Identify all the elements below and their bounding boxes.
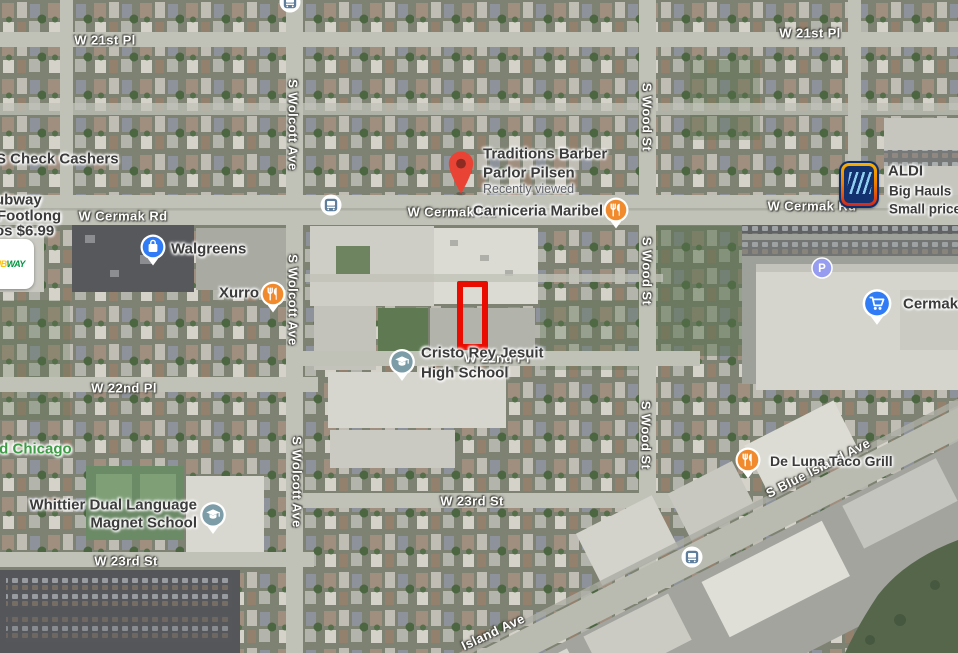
street-label-wood-3: S Wood St — [639, 401, 654, 469]
parking-icon[interactable]: P — [811, 257, 833, 279]
bus-stop-icon[interactable] — [320, 194, 342, 216]
poi-label-whittier-1[interactable]: Whittier Dual Language — [29, 497, 197, 514]
graduation-cap-icon[interactable] — [389, 349, 416, 382]
poi-label-walgreens[interactable]: Walgreens — [171, 241, 246, 258]
bus-stop-icon[interactable] — [279, 0, 301, 13]
street-label-wood-1: S Wood St — [640, 83, 655, 151]
subway-logo-text-right: WAY — [7, 259, 25, 269]
highlight-rectangle — [457, 281, 488, 350]
street-label-w22nd-pl-1: W 22nd Pl — [91, 381, 157, 396]
poi-label-traditions-1[interactable]: Traditions Barber — [483, 146, 607, 163]
street-label-cermak-1: W Cermak Rd — [79, 209, 168, 224]
restaurant-icon[interactable] — [260, 281, 286, 313]
street-label-wood-2: S Wood St — [640, 237, 655, 305]
restaurant-icon[interactable] — [603, 197, 629, 229]
street-label-w23rd-st-2: W 23rd St — [94, 554, 158, 569]
poi-label-subway[interactable]: ubway — [0, 192, 42, 209]
poi-label-de-luna[interactable]: De Luna Taco Grill — [770, 453, 893, 469]
bus-stop-icon[interactable] — [681, 546, 703, 568]
poi-label-xurro[interactable]: Xurro — [219, 285, 259, 302]
poi-label-aldi-tagline-2: Small price T — [889, 202, 958, 217]
street-label-wolcott-2: S Wolcott Ave — [286, 254, 301, 345]
poi-label-traditions-2[interactable]: Parlor Pilsen — [483, 165, 575, 182]
map-pin-icon[interactable] — [446, 147, 476, 199]
poi-label-aldi[interactable]: ALDI — [888, 163, 923, 180]
street-label-wolcott-1: S Wolcott Ave — [286, 79, 301, 170]
poi-label-cristo-rey-1[interactable]: Cristo Rey Jesuit — [421, 345, 544, 362]
poi-status-recently-viewed: Recently viewed — [483, 182, 574, 196]
poi-label-whittier-2[interactable]: Magnet School — [90, 515, 197, 532]
poi-label-check-cashers[interactable]: S Check Cashers — [0, 151, 119, 168]
subway-logo-text-left: SUB — [0, 259, 7, 269]
shopping-bag-icon[interactable] — [140, 234, 166, 266]
street-label-w21st-pl-2: W 21st Pl — [779, 26, 840, 41]
poi-label-carniceria[interactable]: Carniceria Maribel — [473, 203, 603, 220]
area-label-green: od Chicago — [0, 441, 72, 458]
map-canvas[interactable]: W 21st Pl W 21st Pl W Cermak Rd W Cermak… — [0, 0, 958, 653]
graduation-cap-icon[interactable] — [200, 502, 227, 535]
svg-text:P: P — [818, 263, 826, 275]
street-label-w23rd-st-1: W 23rd St — [440, 494, 504, 509]
shopping-cart-icon[interactable] — [862, 289, 892, 326]
street-label-w21st-pl-1: W 21st Pl — [74, 33, 135, 48]
aldi-logo[interactable] — [839, 161, 879, 208]
subway-logo[interactable]: SUBWAY — [0, 239, 34, 289]
poi-label-cermak[interactable]: Cermak — [903, 296, 958, 313]
poi-label-cristo-rey-2[interactable]: High School — [421, 365, 509, 382]
street-label-wolcott-3: S Wolcott Ave — [290, 436, 305, 527]
poi-label-aldi-tagline-1: Big Hauls — [889, 184, 951, 199]
restaurant-icon[interactable] — [735, 447, 761, 479]
poi-label-subway-promo-2: os $6.99 — [0, 223, 54, 240]
